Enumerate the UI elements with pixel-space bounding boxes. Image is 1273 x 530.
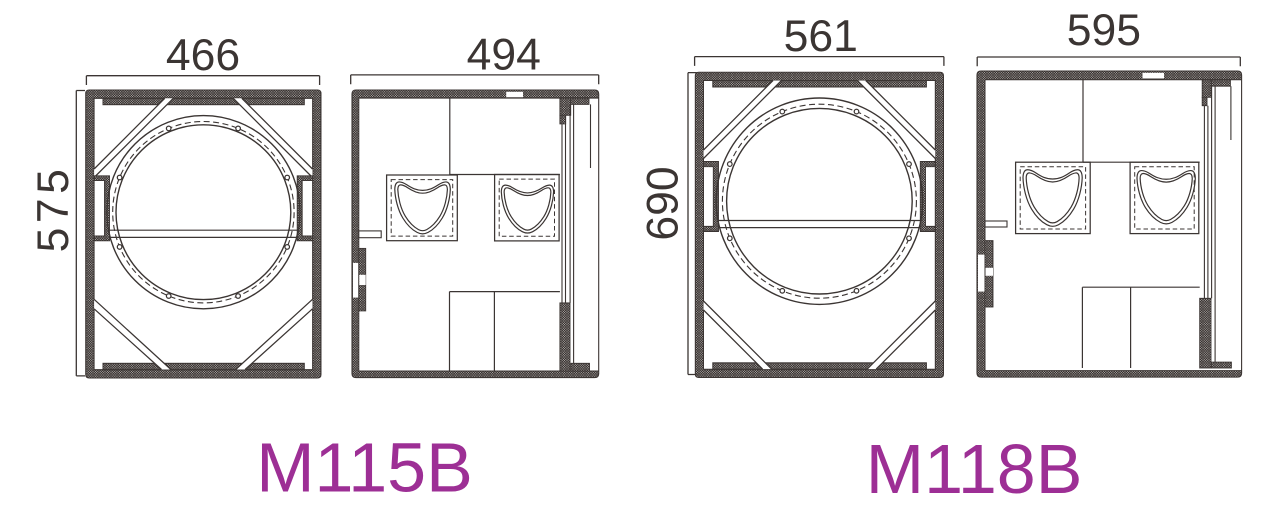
svg-text:466: 466 [166,31,240,80]
svg-text:M118B: M118B [866,430,1083,508]
svg-text:595: 595 [1067,6,1141,55]
svg-text:575: 575 [29,165,78,253]
svg-text:M115B: M115B [256,429,473,507]
svg-text:690: 690 [639,166,688,240]
svg-text:494: 494 [467,31,541,80]
svg-text:561: 561 [784,12,858,61]
